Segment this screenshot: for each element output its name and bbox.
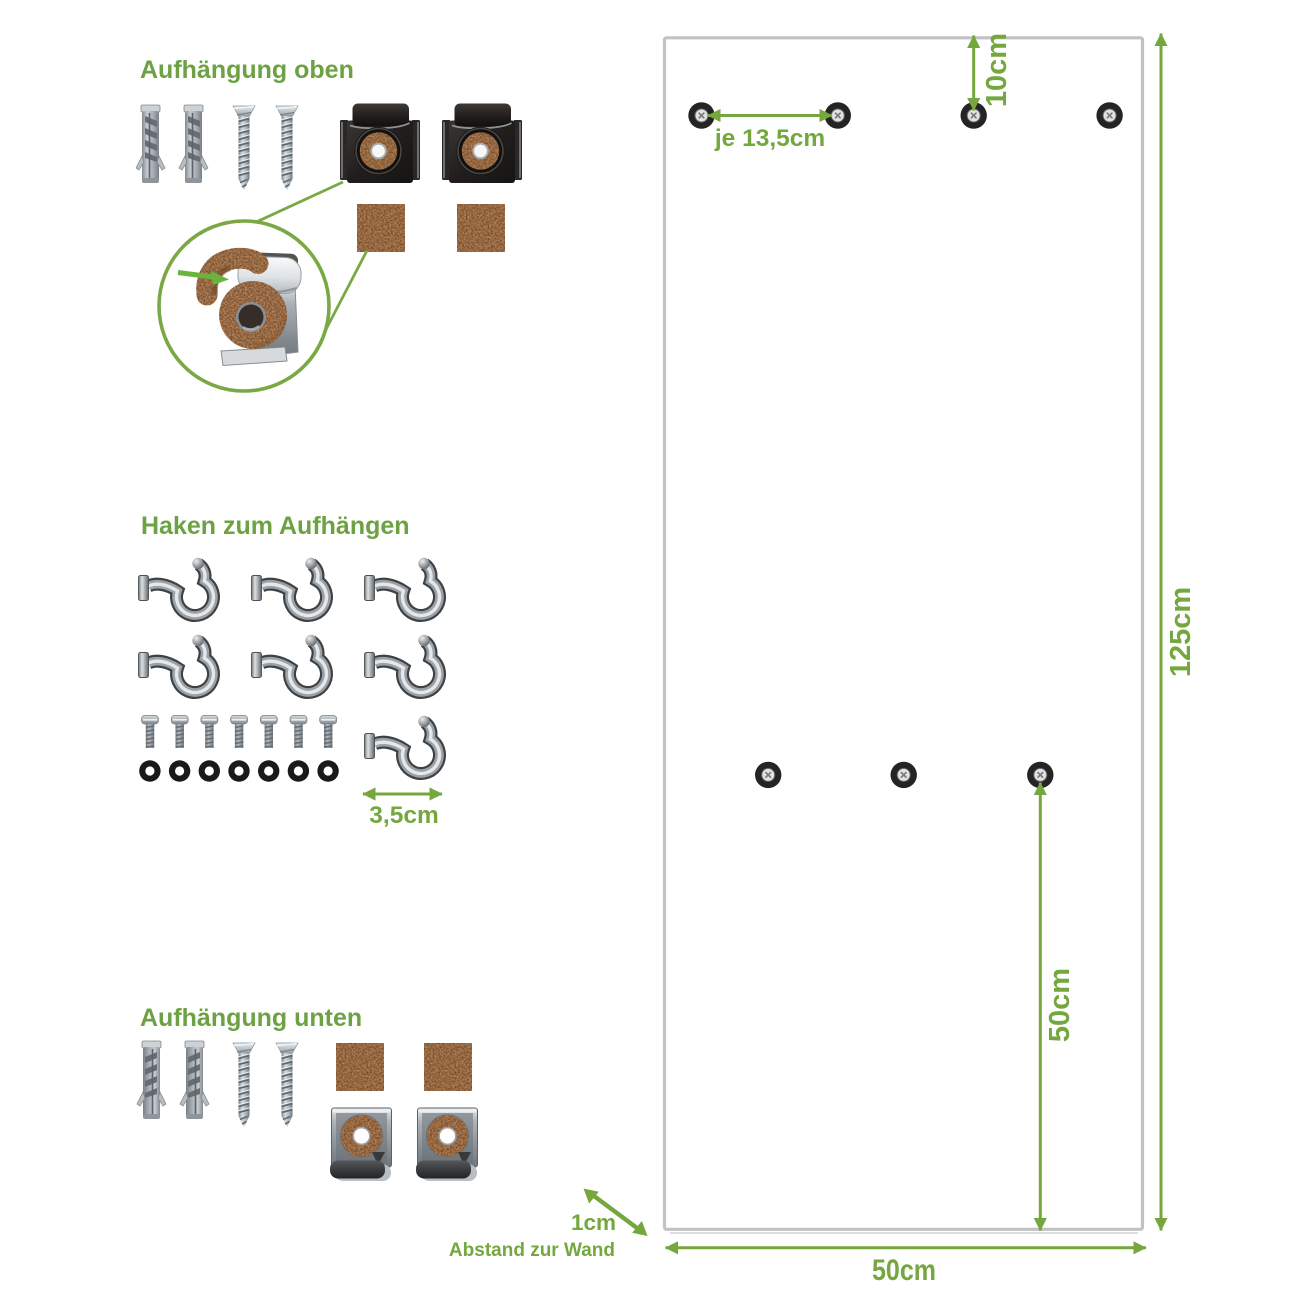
svg-text:Aufhängung oben: Aufhängung oben — [140, 56, 354, 84]
svg-text:1cm: 1cm — [571, 1210, 616, 1235]
svg-text:Aufhängung unten: Aufhängung unten — [140, 1004, 362, 1032]
svg-text:je 13,5cm: je 13,5cm — [714, 125, 825, 152]
svg-text:Abstand zur Wand: Abstand zur Wand — [449, 1240, 615, 1261]
svg-text:50cm: 50cm — [1044, 968, 1076, 1042]
svg-text:125cm: 125cm — [1165, 587, 1197, 677]
svg-text:10cm: 10cm — [981, 33, 1013, 107]
svg-text:3,5cm: 3,5cm — [369, 802, 438, 829]
svg-text:50cm: 50cm — [872, 1254, 936, 1287]
svg-text:Haken zum Aufhängen: Haken zum Aufhängen — [141, 512, 410, 540]
